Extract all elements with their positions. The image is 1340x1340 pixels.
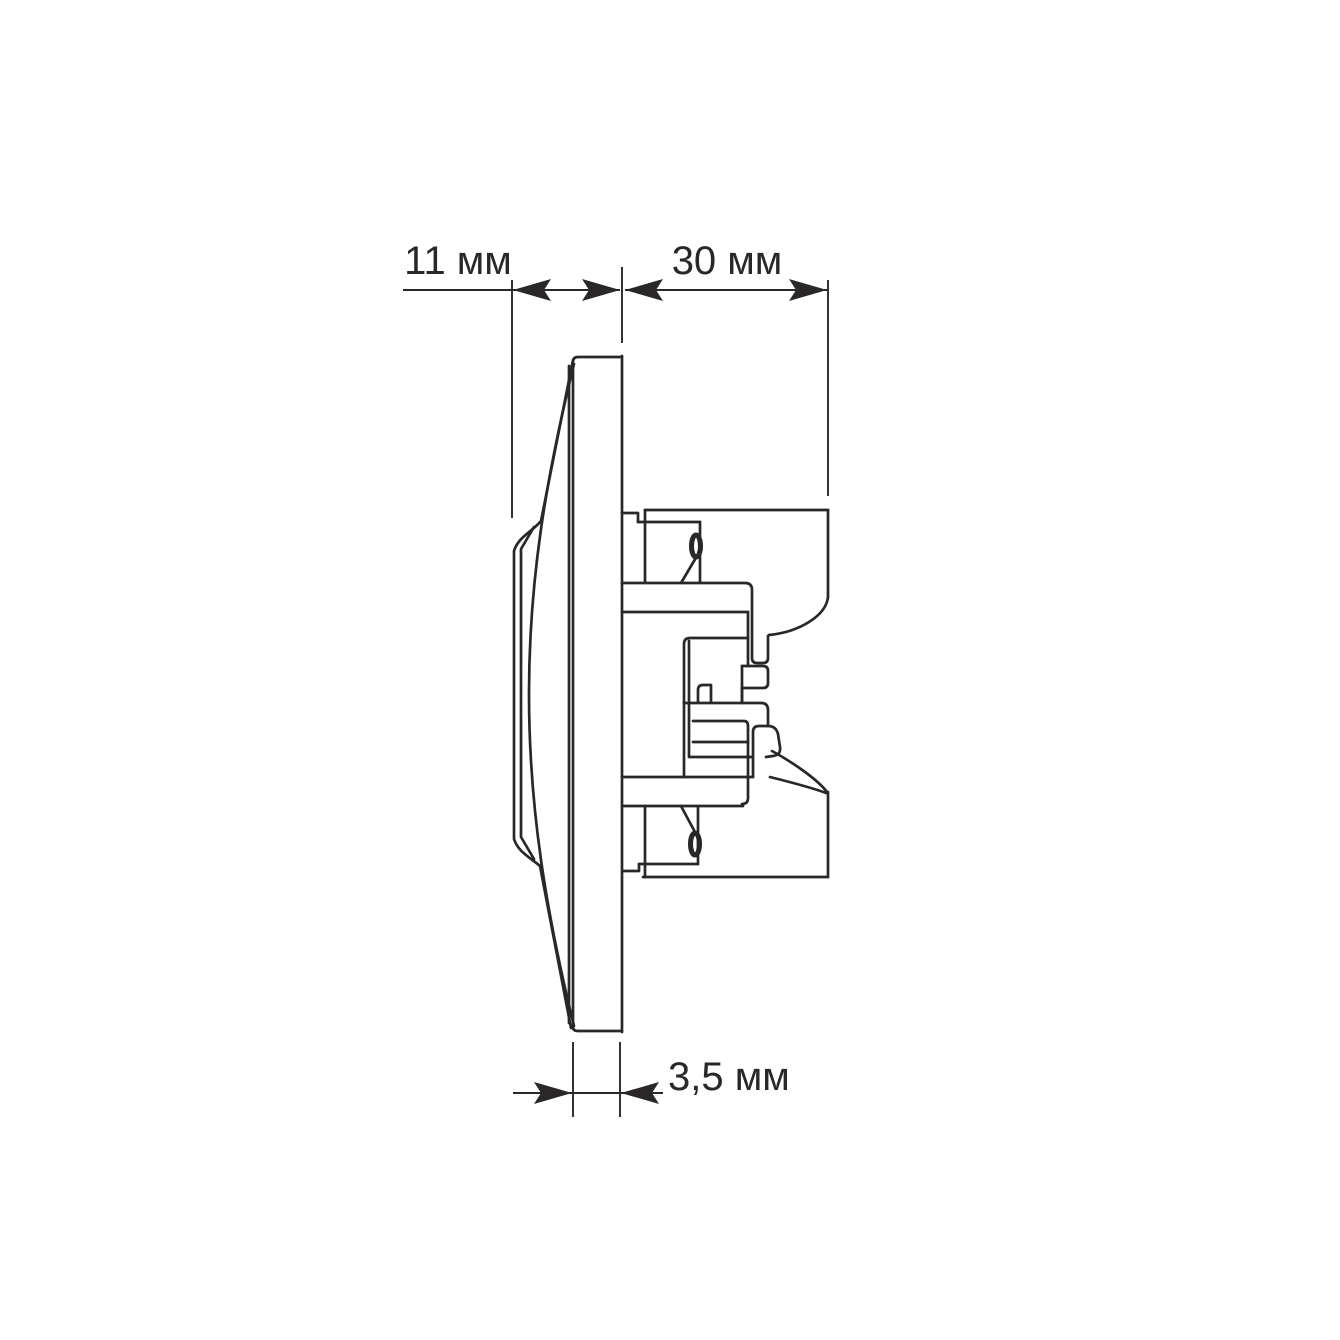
- housing-top-curve: [769, 597, 828, 635]
- mechanism-profile: [622, 510, 828, 877]
- pivot-block: [753, 726, 780, 777]
- dimension-30mm: 30 мм: [625, 239, 828, 496]
- dimension-11mm: 11 мм: [403, 239, 622, 518]
- dim-label-3-5mm: 3,5 мм: [668, 1055, 790, 1099]
- frame-front-bevel: [521, 527, 534, 859]
- dimension-3-5mm: 3,5 мм: [513, 1042, 790, 1117]
- top-claw-arm: [681, 556, 697, 583]
- upper-block-step: [742, 666, 768, 703]
- lower-block-inner-top: [693, 721, 748, 804]
- upper-flange-top: [622, 583, 768, 663]
- technical-drawing: 11 мм 30 мм 3,5 мм: [0, 0, 1340, 1340]
- faceplate-profile: [514, 356, 622, 1032]
- backplate-outline: [573, 357, 622, 1031]
- rocker-curve: [529, 364, 574, 1026]
- drawing-canvas: 11 мм 30 мм 3,5 мм: [0, 0, 1340, 1340]
- dim-label-30mm: 30 мм: [672, 239, 783, 283]
- top-step-notch: [622, 513, 638, 522]
- upper-block-outline: [684, 638, 748, 703]
- bottom-claw-screw: [691, 833, 700, 855]
- lower-block-outline: [684, 703, 768, 726]
- dim-label-11mm: 11 мм: [404, 239, 512, 283]
- bottom-step-notch: [623, 864, 639, 871]
- center-tab: [698, 685, 711, 702]
- frame-outer-profile: [514, 360, 573, 1028]
- bottom-claw-arm: [681, 806, 696, 834]
- top-claw-screw: [692, 535, 701, 557]
- lower-claw-arm-lower: [770, 777, 826, 793]
